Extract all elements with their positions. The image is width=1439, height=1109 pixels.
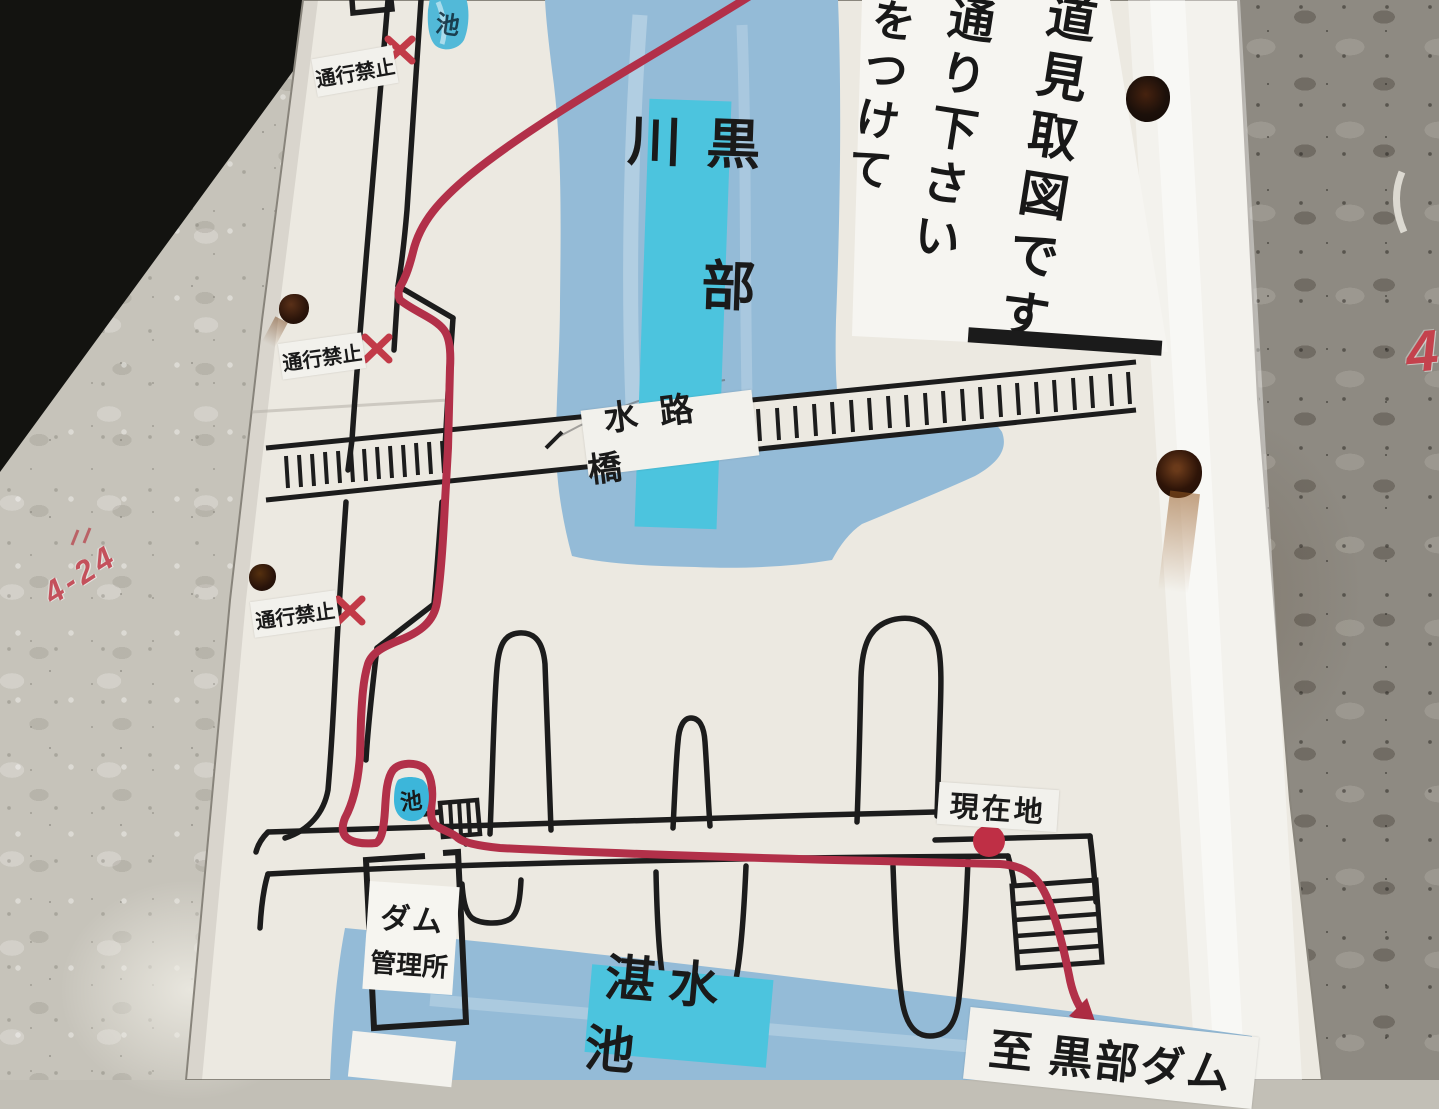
reservoir-label: 湛水池 — [585, 964, 774, 1068]
pond-char-bottom: 池 — [392, 778, 430, 821]
photo-of-trail-map-signboard: { "notice": { "line1": "道見取図です", "line2"… — [0, 0, 1439, 1080]
bridge-label: 水路橋 — [581, 390, 760, 476]
dam-office-line2: 管理所 — [369, 942, 449, 984]
dam-office-label: ダム 管理所 — [362, 881, 459, 995]
graffiti-4: 4 — [1403, 317, 1439, 387]
current-location-label: 現在地 — [937, 782, 1060, 832]
current-location-dot — [973, 825, 1005, 857]
dam-office-line1: ダム — [379, 892, 446, 940]
pond-char-top: 池 — [427, 0, 468, 44]
